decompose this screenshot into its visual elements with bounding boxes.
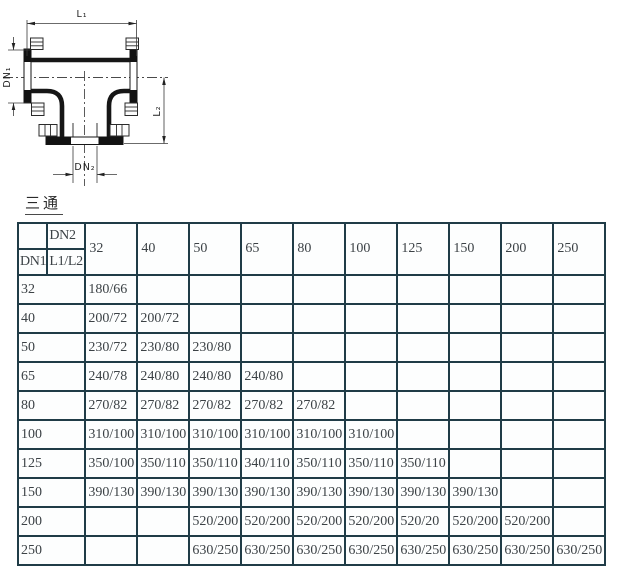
cell-65-65: 240/80 [241,362,293,391]
cell-40-125 [397,304,449,333]
cell-40-65 [241,304,293,333]
cell-65-40: 240/80 [137,362,189,391]
row-header-65: 65 [18,362,85,391]
cell-50-80 [293,333,345,362]
dim-label-dn2: DN₂ [74,162,95,173]
cell-65-80 [293,362,345,391]
cell-80-250 [553,391,605,420]
cell-100-80: 310/100 [293,420,345,449]
cell-100-32: 310/100 [85,420,137,449]
corner-dn1-label: DN1 [18,249,47,275]
cell-32-50 [189,275,241,304]
cell-200-200: 520/200 [501,507,553,536]
cell-250-32 [85,536,137,565]
row-header-50: 50 [18,333,85,362]
cell-50-32: 230/72 [85,333,137,362]
corner-empty-cell [18,223,47,249]
cell-80-32: 270/82 [85,391,137,420]
cell-65-200 [501,362,553,391]
page-title: 三通 [25,192,63,215]
column-header-125: 125 [397,223,449,275]
table-row-150: 150390/130390/130390/130390/130390/13039… [18,478,605,507]
cell-150-150: 390/130 [449,478,501,507]
column-header-80: 80 [293,223,345,275]
row-header-40: 40 [18,304,85,333]
cell-150-125: 390/130 [397,478,449,507]
cell-32-80 [293,275,345,304]
table-body: 32180/6640200/72200/7250230/72230/80230/… [18,275,605,565]
cell-80-100 [345,391,397,420]
cell-250-65: 630/250 [241,536,293,565]
row-header-200: 200 [18,507,85,536]
cell-32-125 [397,275,449,304]
cell-150-40: 390/130 [137,478,189,507]
cell-50-150 [449,333,501,362]
cell-200-125: 520/20 [397,507,449,536]
table-row-100: 100310/100310/100310/100310/100310/10031… [18,420,605,449]
cell-50-65 [241,333,293,362]
column-header-50: 50 [189,223,241,275]
column-header-40: 40 [137,223,189,275]
table-row-125: 125350/100350/110350/110340/110350/11035… [18,449,605,478]
cell-125-250 [553,449,605,478]
cell-250-40 [137,536,189,565]
cell-65-100 [345,362,397,391]
cell-250-250: 630/250 [553,536,605,565]
column-header-32: 32 [85,223,137,275]
cell-125-40: 350/110 [137,449,189,478]
cell-150-32: 390/130 [85,478,137,507]
table-row-65: 65240/78240/80240/80240/80 [18,362,605,391]
header-row-top: DN2 3240506580100125150200250 [18,223,605,249]
corner-l1l2-label: L1/L2 [47,249,85,275]
row-header-32: 32 [18,275,85,304]
cell-80-150 [449,391,501,420]
cell-50-40: 230/80 [137,333,189,362]
table-row-50: 50230/72230/80230/80 [18,333,605,362]
row-header-80: 80 [18,391,85,420]
table-row-40: 40200/72200/72 [18,304,605,333]
table-row-200: 200520/200520/200520/200520/200520/20520… [18,507,605,536]
cell-32-65 [241,275,293,304]
cell-250-80: 630/250 [293,536,345,565]
cell-125-32: 350/100 [85,449,137,478]
dimension-table: DN2 3240506580100125150200250 DN1 L1/L2 … [17,222,606,566]
cell-150-50: 390/130 [189,478,241,507]
cell-50-250 [553,333,605,362]
cell-32-250 [553,275,605,304]
cell-100-50: 310/100 [189,420,241,449]
cell-80-50: 270/82 [189,391,241,420]
cell-65-150 [449,362,501,391]
cell-80-80: 270/82 [293,391,345,420]
column-header-65: 65 [241,223,293,275]
dim-label-l1: L₁ [76,9,87,20]
cell-125-150 [449,449,501,478]
cell-150-200 [501,478,553,507]
cell-32-40 [137,275,189,304]
cell-200-40 [137,507,189,536]
cell-125-65: 340/110 [241,449,293,478]
cell-50-200 [501,333,553,362]
cell-40-40: 200/72 [137,304,189,333]
cell-100-150 [449,420,501,449]
cell-50-50: 230/80 [189,333,241,362]
cell-200-80: 520/200 [293,507,345,536]
cell-125-125: 350/110 [397,449,449,478]
cell-65-250 [553,362,605,391]
cell-125-100: 350/110 [345,449,397,478]
cell-32-100 [345,275,397,304]
cell-125-200 [501,449,553,478]
cell-80-65: 270/82 [241,391,293,420]
cell-40-250 [553,304,605,333]
row-header-250: 250 [18,536,85,565]
cell-100-100: 310/100 [345,420,397,449]
cell-250-150: 630/250 [449,536,501,565]
cell-200-150: 520/200 [449,507,501,536]
cell-125-50: 350/110 [189,449,241,478]
cell-32-200 [501,275,553,304]
cell-150-65: 390/130 [241,478,293,507]
cell-40-50 [189,304,241,333]
cell-80-200 [501,391,553,420]
dim-label-dn1: DN₁ [2,66,13,87]
cell-40-32: 200/72 [85,304,137,333]
cell-200-100: 520/200 [345,507,397,536]
table-row-250: 250630/250630/250630/250630/250630/25063… [18,536,605,565]
cell-65-50: 240/80 [189,362,241,391]
cell-250-200: 630/250 [501,536,553,565]
cell-200-65: 520/200 [241,507,293,536]
row-header-100: 100 [18,420,85,449]
cell-50-125 [397,333,449,362]
cell-40-80 [293,304,345,333]
cell-250-50: 630/250 [189,536,241,565]
table-row-80: 80270/82270/82270/82270/82270/82 [18,391,605,420]
cell-100-65: 310/100 [241,420,293,449]
cell-125-80: 350/110 [293,449,345,478]
cell-100-125 [397,420,449,449]
cell-200-250 [553,507,605,536]
cell-250-125: 630/250 [397,536,449,565]
cell-150-80: 390/130 [293,478,345,507]
cell-80-40: 270/82 [137,391,189,420]
dim-label-l2: L₂ [152,105,163,116]
tee-fitting-drawing: L₁ DN₁ L₂ DN₂ [0,0,190,195]
column-header-150: 150 [449,223,501,275]
row-header-125: 125 [18,449,85,478]
cell-32-32: 180/66 [85,275,137,304]
cell-150-100: 390/130 [345,478,397,507]
cell-40-200 [501,304,553,333]
column-header-250: 250 [553,223,605,275]
cell-100-40: 310/100 [137,420,189,449]
cell-65-125 [397,362,449,391]
column-header-200: 200 [501,223,553,275]
cell-250-100: 630/250 [345,536,397,565]
cell-40-150 [449,304,501,333]
cell-200-32 [85,507,137,536]
column-header-100: 100 [345,223,397,275]
cell-100-200 [501,420,553,449]
cell-50-100 [345,333,397,362]
cell-100-250 [553,420,605,449]
cell-65-32: 240/78 [85,362,137,391]
corner-dn2-label: DN2 [47,223,85,249]
dimension-dn2: DN₂ [53,146,117,183]
table-row-32: 32180/66 [18,275,605,304]
cell-32-150 [449,275,501,304]
cell-40-100 [345,304,397,333]
row-header-150: 150 [18,478,85,507]
cell-80-125 [397,391,449,420]
cell-200-50: 520/200 [189,507,241,536]
cell-150-250 [553,478,605,507]
